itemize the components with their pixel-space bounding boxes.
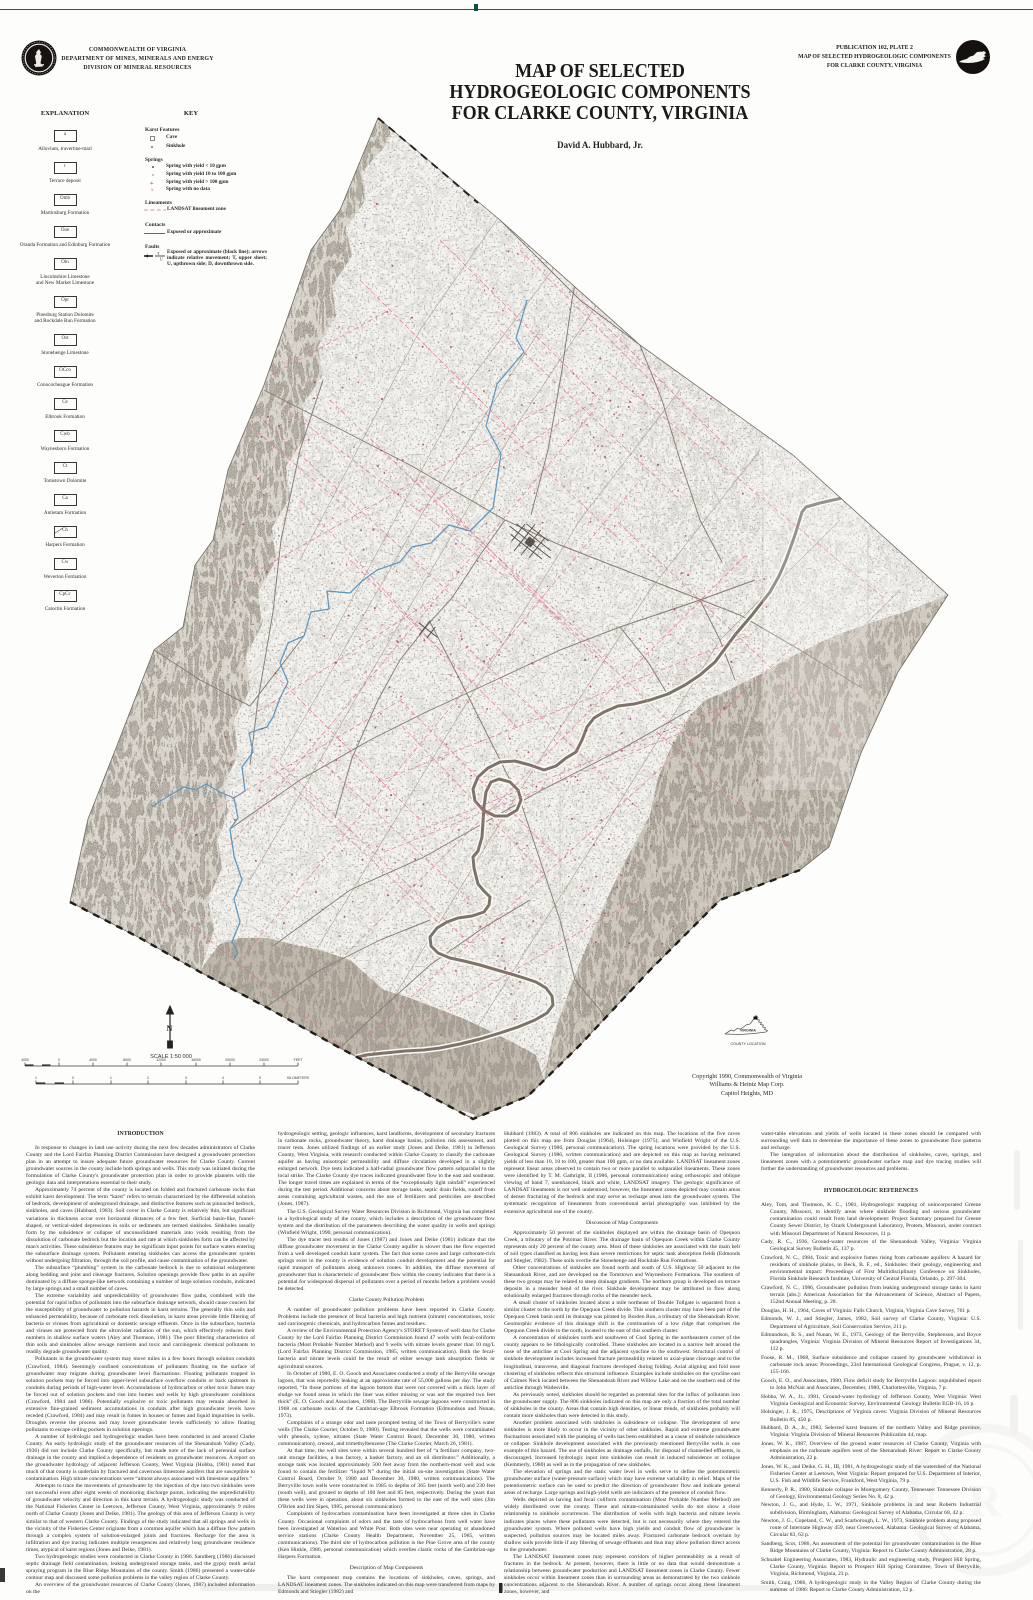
svg-text:5: 5 — [259, 1076, 261, 1080]
svg-text:12000: 12000 — [156, 1058, 166, 1062]
svg-text:20000: 20000 — [225, 1058, 235, 1062]
svg-text:N: N — [167, 1024, 173, 1033]
svg-text:2: 2 — [147, 1076, 149, 1080]
svg-text:16000: 16000 — [191, 1058, 201, 1062]
svg-text:1: 1 — [35, 1076, 37, 1080]
svg-text:KILOMETERS: KILOMETERS — [287, 1076, 310, 1080]
svg-text:VIRGINIA: VIRGINIA — [740, 1029, 756, 1033]
svg-text:24000: 24000 — [259, 1058, 269, 1062]
svg-text:4000: 4000 — [21, 1058, 29, 1062]
svg-text:4000: 4000 — [89, 1058, 97, 1062]
svg-text:FEET: FEET — [294, 1058, 303, 1062]
svg-text:3: 3 — [185, 1076, 187, 1080]
svg-text:1: 1 — [110, 1076, 112, 1080]
svg-text:4: 4 — [222, 1076, 224, 1080]
svg-text:COUNTY LOCATION: COUNTY LOCATION — [730, 1042, 765, 1046]
svg-text:8000: 8000 — [123, 1058, 131, 1062]
svg-text:0: 0 — [58, 1058, 60, 1062]
svg-text:0: 0 — [72, 1076, 74, 1080]
